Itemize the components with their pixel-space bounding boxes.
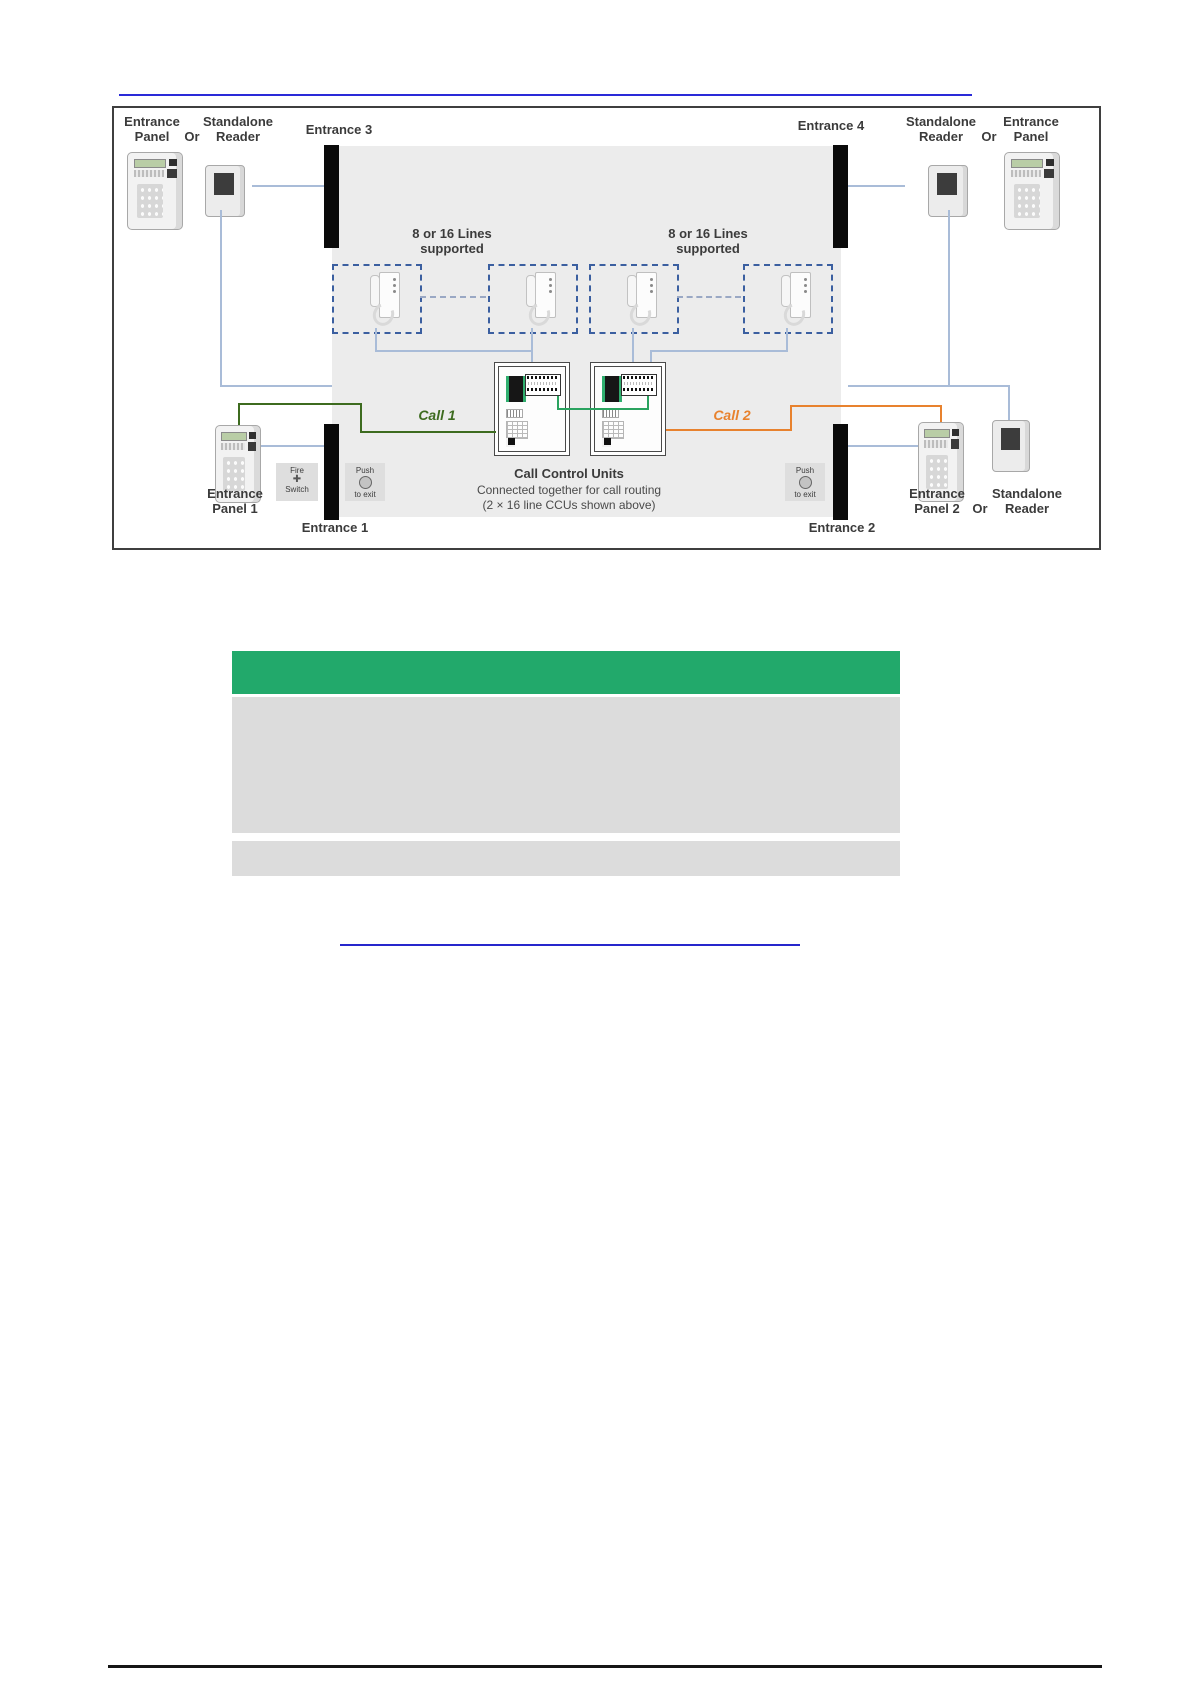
fire-switch-label: Switch bbox=[285, 485, 309, 494]
call-1-label: Call 1 bbox=[407, 407, 467, 423]
handset-dot bbox=[650, 284, 653, 287]
ccu-grid-label bbox=[506, 421, 528, 439]
wire bbox=[531, 328, 533, 364]
handset-icon bbox=[781, 272, 811, 326]
label-bottom-right-standalone-reader: Standalone Reader bbox=[988, 486, 1066, 516]
panel-lcd bbox=[134, 159, 165, 168]
table-row bbox=[232, 841, 900, 876]
fire-switch-button: Fire ✚ Switch bbox=[276, 463, 318, 501]
push-to-exit-button: Push to exit bbox=[785, 463, 825, 501]
reader-window bbox=[1001, 428, 1020, 451]
label-entrance-panel-1: Entrance Panel 1 bbox=[202, 486, 268, 516]
system-diagram: Entrance Panel Or Standalone Reader Entr… bbox=[112, 106, 1101, 550]
wire bbox=[632, 328, 634, 364]
ccu-board bbox=[498, 366, 566, 452]
terminal-row bbox=[527, 376, 559, 379]
call-2-line bbox=[790, 405, 792, 431]
label-text: Panel bbox=[120, 129, 184, 144]
reader-window bbox=[937, 173, 957, 196]
label-text: supported bbox=[390, 241, 514, 256]
wire bbox=[948, 210, 950, 385]
terminal-row bbox=[527, 388, 559, 391]
wall-entrance-1 bbox=[324, 424, 339, 520]
label-text: Standalone bbox=[988, 486, 1066, 501]
wire bbox=[786, 328, 788, 352]
terminal-row bbox=[623, 388, 655, 391]
reader-window bbox=[214, 173, 234, 196]
label-lines-supported-right: 8 or 16 Lines supported bbox=[646, 226, 770, 256]
call-2-line bbox=[940, 405, 942, 423]
handset-dot bbox=[804, 284, 807, 287]
push-exit-label: to exit bbox=[794, 490, 815, 499]
handset-dot bbox=[393, 290, 396, 293]
label-text: Reader bbox=[200, 129, 276, 144]
panel-keypad bbox=[926, 455, 947, 489]
wire bbox=[220, 210, 222, 385]
handset-box-2 bbox=[488, 264, 578, 334]
handset-box-1 bbox=[332, 264, 422, 334]
label-entrance-4: Entrance 4 bbox=[789, 118, 873, 133]
handset-box-4 bbox=[743, 264, 833, 334]
label-entrance-panel-2: Entrance Panel 2 bbox=[904, 486, 970, 516]
wire bbox=[375, 328, 377, 352]
wire bbox=[1008, 385, 1010, 424]
ccu-terminal-block bbox=[621, 374, 657, 396]
call-2-line bbox=[666, 429, 792, 431]
panel-speaker-grille bbox=[924, 440, 948, 448]
label-text: 8 or 16 Lines bbox=[646, 226, 770, 241]
wire bbox=[848, 445, 918, 447]
label-top-left-or: Or bbox=[184, 129, 200, 144]
handset-receiver bbox=[627, 275, 637, 307]
terminal-row bbox=[624, 382, 654, 385]
label-text: Standalone bbox=[200, 114, 276, 129]
wire bbox=[258, 445, 324, 447]
label-entrance-3: Entrance 3 bbox=[297, 122, 381, 137]
standalone-reader-device bbox=[992, 420, 1030, 472]
entrance-panel-device bbox=[127, 152, 183, 230]
ccu-logo bbox=[602, 438, 611, 447]
push-exit-label: to exit bbox=[354, 490, 375, 499]
label-text: Panel 1 bbox=[202, 501, 268, 516]
handset-box-3 bbox=[589, 264, 679, 334]
call-2-line bbox=[790, 405, 942, 407]
wall-entrance-2 bbox=[833, 424, 848, 520]
label-text: Reader bbox=[988, 501, 1066, 516]
wire bbox=[375, 350, 533, 352]
label-bottom-right-or: Or bbox=[972, 501, 988, 516]
label-text: Panel bbox=[998, 129, 1064, 144]
terminal-row bbox=[623, 376, 655, 379]
ccu-caption-title: Call Control Units bbox=[424, 466, 714, 481]
handset-dot bbox=[804, 278, 807, 281]
panel-camera bbox=[169, 159, 177, 166]
handset-dot bbox=[549, 278, 552, 281]
handset-dot bbox=[650, 290, 653, 293]
standalone-reader-device bbox=[205, 165, 245, 217]
wall-entrance-4 bbox=[833, 145, 848, 248]
handset-dot bbox=[549, 284, 552, 287]
panel-speaker bbox=[951, 439, 959, 448]
label-text: Standalone bbox=[903, 114, 979, 129]
panel-speaker-grille bbox=[134, 170, 163, 178]
wire bbox=[252, 185, 324, 187]
handset-receiver bbox=[370, 275, 380, 307]
entrance-panel-device bbox=[1004, 152, 1060, 230]
push-to-exit-button: Push to exit bbox=[345, 463, 385, 501]
handset-icon bbox=[370, 272, 400, 326]
handset-icon bbox=[627, 272, 657, 326]
table-header-bar bbox=[232, 651, 900, 694]
terminal-row bbox=[528, 382, 558, 385]
handset-receiver bbox=[781, 275, 791, 307]
ccu-caption-line-1: Connected together for call routing bbox=[424, 483, 714, 497]
label-text: Entrance bbox=[120, 114, 184, 129]
ccu-grid-label bbox=[602, 421, 624, 439]
wire bbox=[650, 350, 788, 352]
push-exit-label: Push bbox=[796, 466, 814, 475]
label-top-right-or: Or bbox=[981, 129, 997, 144]
handset-dot bbox=[393, 284, 396, 287]
label-top-right-entrance-panel: Entrance Panel bbox=[998, 114, 1064, 144]
label-text: Panel 2 bbox=[904, 501, 970, 516]
wire bbox=[220, 385, 332, 387]
label-top-right-standalone-reader: Standalone Reader bbox=[903, 114, 979, 144]
panel-lcd bbox=[924, 429, 950, 438]
panel-camera bbox=[952, 429, 959, 436]
ccu-barcode bbox=[602, 409, 619, 418]
wall-entrance-3 bbox=[324, 145, 339, 248]
top-rule bbox=[119, 94, 972, 96]
call-1-line bbox=[360, 403, 362, 433]
label-entrance-1: Entrance 1 bbox=[300, 520, 370, 535]
document-page: Entrance Panel Or Standalone Reader Entr… bbox=[0, 0, 1192, 1685]
panel-camera bbox=[249, 432, 256, 439]
ccu-terminal-block bbox=[525, 374, 561, 396]
handset-dot bbox=[804, 290, 807, 293]
panel-lcd bbox=[221, 432, 247, 441]
push-button-icon bbox=[799, 476, 812, 489]
panel-camera bbox=[1046, 159, 1054, 166]
bottom-rule bbox=[108, 1665, 1102, 1668]
label-top-left-standalone-reader: Standalone Reader bbox=[200, 114, 276, 144]
handset-receiver bbox=[526, 275, 536, 307]
handset-chain-dashes-right bbox=[677, 296, 741, 298]
wire bbox=[848, 385, 1008, 387]
push-button-icon bbox=[359, 476, 372, 489]
handset-dot bbox=[549, 290, 552, 293]
panel-speaker bbox=[167, 169, 177, 178]
label-text: Entrance bbox=[202, 486, 268, 501]
label-text: supported bbox=[646, 241, 770, 256]
panel-speaker-grille bbox=[1011, 170, 1040, 178]
ccu-link-cable bbox=[557, 396, 649, 410]
ccu-barcode bbox=[506, 409, 523, 418]
panel-speaker bbox=[1044, 169, 1054, 178]
ccu-chip bbox=[506, 376, 526, 402]
table-row bbox=[232, 697, 900, 833]
label-lines-supported-left: 8 or 16 Lines supported bbox=[390, 226, 514, 256]
panel-speaker-grille bbox=[221, 443, 245, 451]
hyperlink-underline[interactable] bbox=[340, 930, 800, 946]
panel-keypad bbox=[1014, 184, 1040, 217]
handset-dot bbox=[650, 278, 653, 281]
push-exit-label: Push bbox=[356, 466, 374, 475]
handset-dot bbox=[393, 278, 396, 281]
label-top-left-entrance-panel: Entrance Panel bbox=[120, 114, 184, 144]
label-text: Entrance bbox=[998, 114, 1064, 129]
ccu-caption-line-2: (2 × 16 line CCUs shown above) bbox=[424, 498, 714, 512]
label-text: Entrance bbox=[904, 486, 970, 501]
call-1-line bbox=[238, 403, 240, 427]
panel-keypad bbox=[137, 184, 163, 217]
call-1-line bbox=[360, 431, 496, 433]
ccu-logo bbox=[506, 438, 515, 447]
panel-lcd bbox=[1011, 159, 1042, 168]
label-text: 8 or 16 Lines bbox=[390, 226, 514, 241]
label-text: Reader bbox=[903, 129, 979, 144]
fire-switch-icon: ✚ bbox=[276, 475, 318, 485]
label-entrance-2: Entrance 2 bbox=[807, 520, 877, 535]
wire bbox=[848, 185, 905, 187]
call-1-line bbox=[238, 403, 362, 405]
panel-speaker bbox=[248, 442, 256, 451]
handset-icon bbox=[526, 272, 556, 326]
handset-chain-dashes-left bbox=[420, 296, 486, 298]
call-2-label: Call 2 bbox=[702, 407, 762, 423]
